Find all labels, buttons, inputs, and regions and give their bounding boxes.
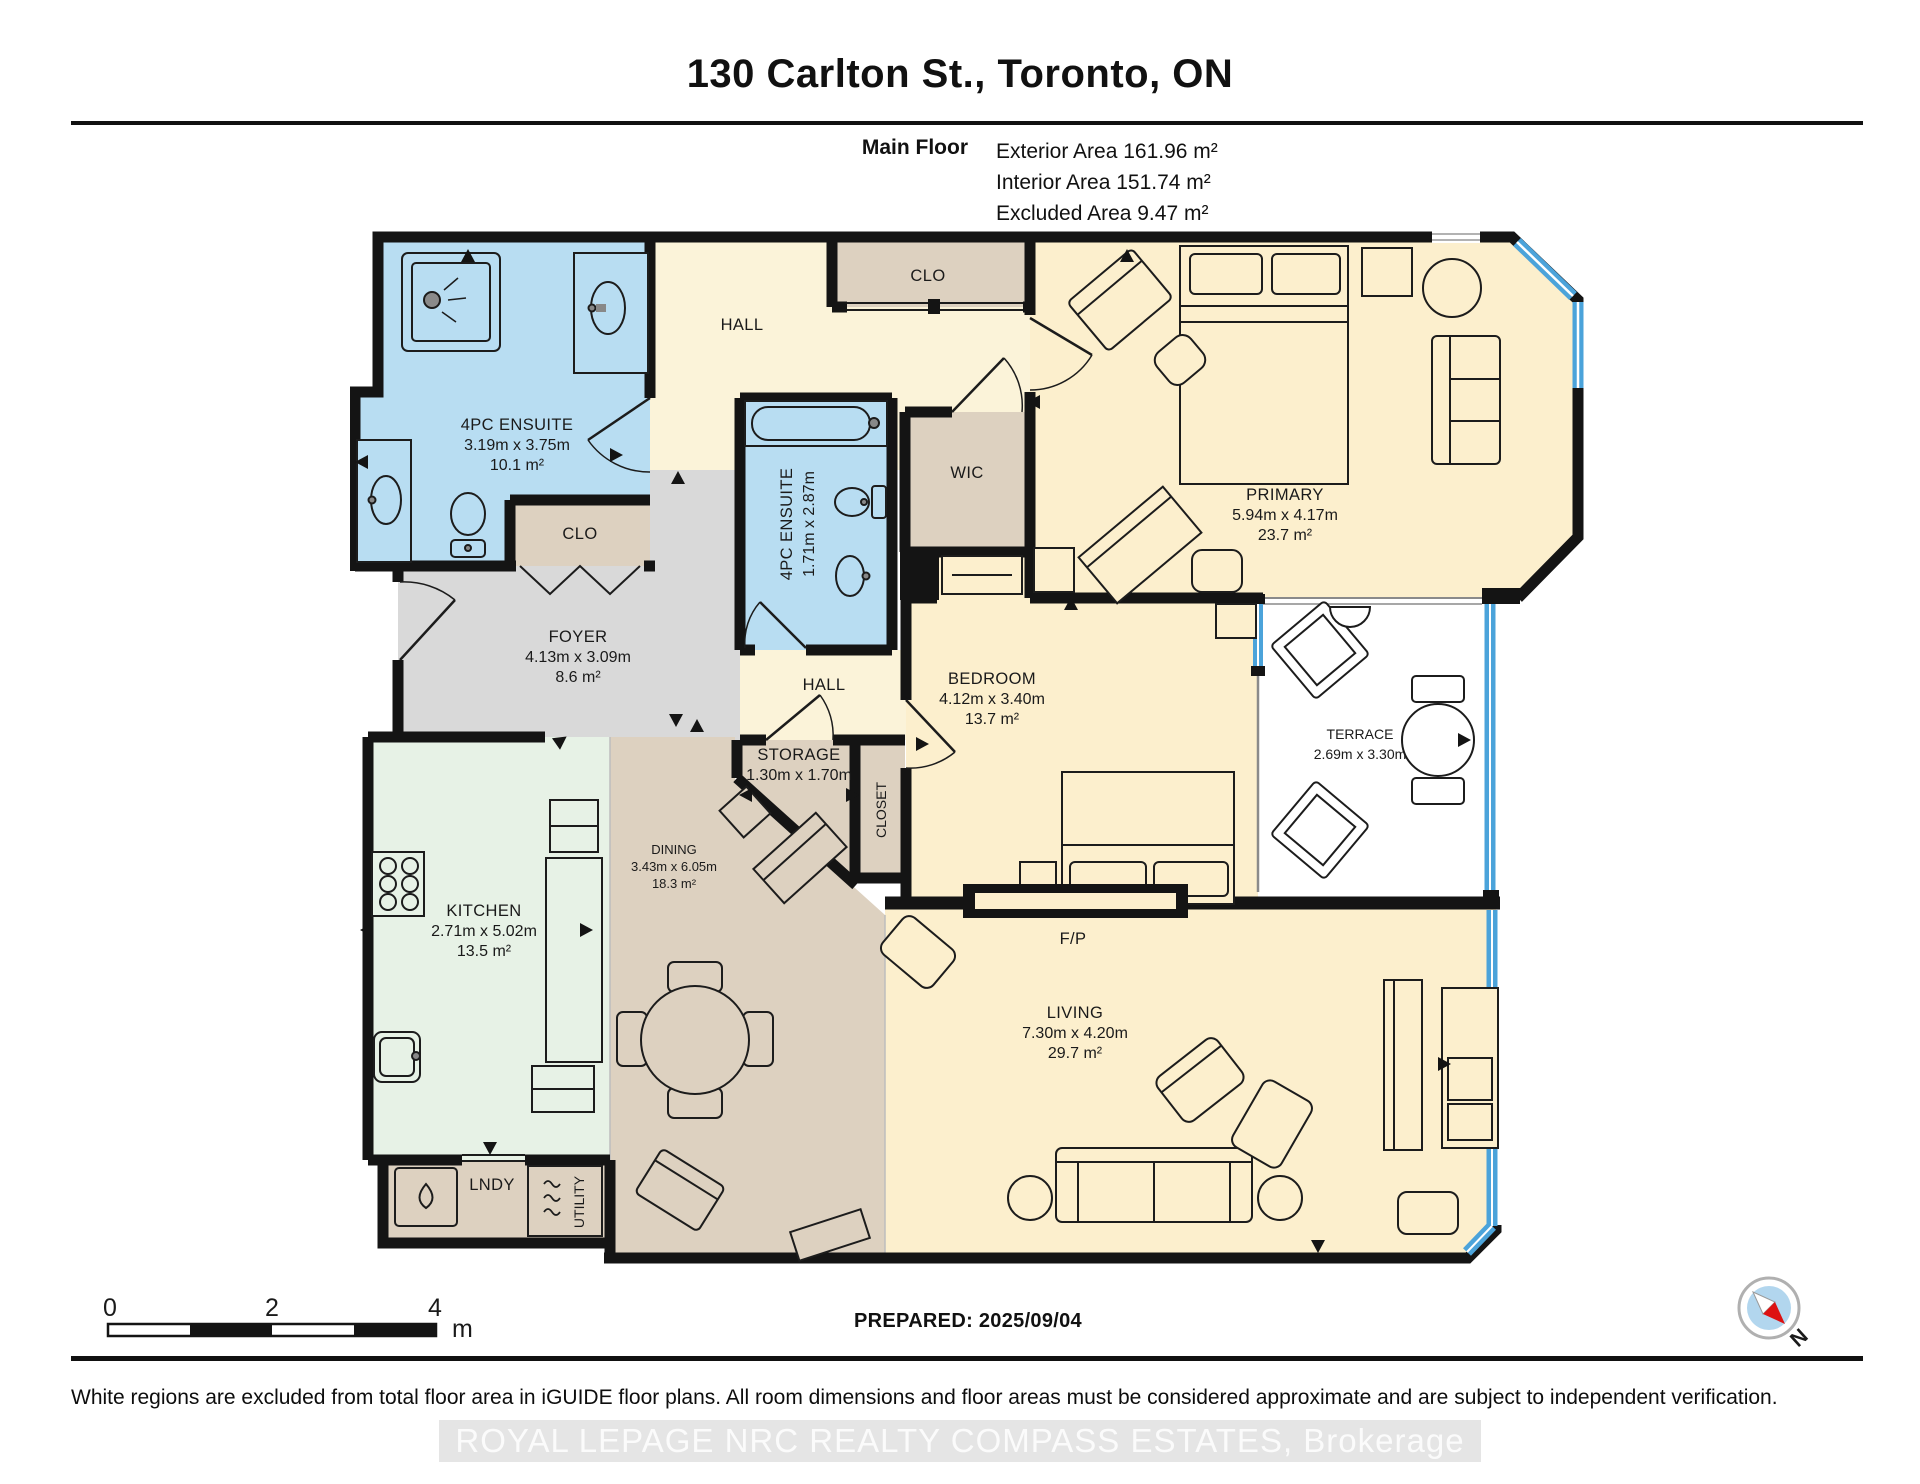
disclaimer: White regions are excluded from total fl… bbox=[71, 1386, 1871, 1410]
svg-text:23.7 m²: 23.7 m² bbox=[1258, 527, 1313, 544]
primary-bed bbox=[1180, 246, 1348, 484]
room-wic bbox=[905, 412, 1030, 552]
floor-plan-svg: 4PC ENSUITE 3.19m x 3.75m 10.1 m² HALL C… bbox=[350, 228, 1600, 1273]
vanity-sink-icon bbox=[574, 253, 648, 373]
header-divider bbox=[71, 121, 1863, 125]
label-foyer: FOYER bbox=[549, 628, 608, 646]
svg-text:8.6 m²: 8.6 m² bbox=[555, 669, 601, 686]
side-table2-icon bbox=[1216, 604, 1256, 638]
scale-tick-2: 2 bbox=[265, 1294, 279, 1322]
svg-text:2.71m x 5.02m: 2.71m x 5.02m bbox=[431, 923, 537, 940]
room-hall-lower bbox=[740, 650, 906, 740]
label-storage: STORAGE bbox=[757, 746, 840, 764]
label-ensuite1: 4PC ENSUITE bbox=[461, 416, 574, 434]
label-bedroom: BEDROOM bbox=[948, 670, 1036, 688]
media-cabinet-icon bbox=[1442, 988, 1498, 1148]
laundry-sink-icon bbox=[395, 1168, 457, 1226]
svg-text:10.1 m²: 10.1 m² bbox=[490, 457, 545, 474]
label-kitchen: KITCHEN bbox=[446, 902, 521, 920]
island-icon bbox=[546, 858, 602, 1062]
label-hall-lower: HALL bbox=[803, 676, 846, 694]
cabinet-icon bbox=[532, 1066, 594, 1112]
scale-bar: 0 2 4 m bbox=[90, 1288, 490, 1366]
scale-tick-0: 0 bbox=[103, 1294, 117, 1322]
label-wic: WIC bbox=[950, 464, 983, 482]
dresser-icon bbox=[942, 556, 1022, 594]
label-ensuite2: 4PC ENSUITE bbox=[778, 468, 796, 581]
kitchen-sink-icon bbox=[374, 1032, 420, 1082]
lounge-chair2-icon bbox=[1271, 781, 1370, 880]
label-hall-upper: HALL bbox=[721, 316, 764, 334]
svg-text:13.5 m²: 13.5 m² bbox=[457, 943, 512, 960]
svg-text:1.71m x 2.87m: 1.71m x 2.87m bbox=[801, 471, 818, 577]
fireplace-icon bbox=[963, 884, 1188, 918]
tv-unit-icon bbox=[1384, 980, 1422, 1150]
round-table-icon bbox=[1423, 259, 1481, 317]
brokerage-watermark: ROYAL LEPAGE NRC REALTY COMPASS ESTATES,… bbox=[439, 1420, 1480, 1462]
nightstand-icon bbox=[1362, 248, 1412, 296]
wall-filler bbox=[900, 550, 939, 600]
page-title: 130 Carlton St., Toronto, ON bbox=[0, 52, 1920, 97]
footer-divider bbox=[71, 1356, 1863, 1361]
svg-text:5.94m x 4.17m: 5.94m x 4.17m bbox=[1232, 507, 1338, 524]
svg-text:13.7 m²: 13.7 m² bbox=[965, 711, 1020, 728]
ottoman2-icon bbox=[1192, 550, 1242, 592]
svg-text:4.12m x 3.40m: 4.12m x 3.40m bbox=[939, 691, 1045, 708]
side-table3-icon bbox=[1398, 1192, 1458, 1234]
label-lndy: LNDY bbox=[469, 1176, 515, 1194]
side-table-icon bbox=[1034, 548, 1074, 592]
floor-plan-page: 130 Carlton St., Toronto, ON Main Floor … bbox=[0, 0, 1920, 1484]
label-clo-top: CLO bbox=[910, 267, 945, 285]
label-closet: CLOSET bbox=[873, 782, 889, 838]
label-primary: PRIMARY bbox=[1246, 486, 1324, 504]
living-sofa bbox=[1056, 1148, 1252, 1222]
svg-text:7.30m x 4.20m: 7.30m x 4.20m bbox=[1022, 1025, 1128, 1042]
svg-text:1.30m x 1.70m: 1.30m x 1.70m bbox=[746, 767, 852, 784]
svg-text:3.43m x 6.05m: 3.43m x 6.05m bbox=[631, 859, 717, 874]
label-utility: UTILITY bbox=[571, 1175, 587, 1228]
svg-text:18.3 m²: 18.3 m² bbox=[652, 876, 697, 891]
area-summary: Exterior Area 161.96 m² Interior Area 15… bbox=[996, 136, 1218, 229]
svg-text:4.13m x 3.09m: 4.13m x 3.09m bbox=[525, 649, 631, 666]
svg-text:3.19m x 3.75m: 3.19m x 3.75m bbox=[464, 437, 570, 454]
shower-icon bbox=[402, 253, 500, 351]
side-round-table-icon bbox=[1008, 1176, 1052, 1220]
fridge-icon bbox=[550, 800, 598, 852]
floor-label: Main Floor bbox=[768, 136, 968, 160]
scale-unit: m bbox=[452, 1315, 473, 1343]
toilet2-icon bbox=[835, 486, 886, 518]
bathtub-icon bbox=[745, 401, 887, 446]
toilet-icon bbox=[451, 493, 485, 557]
label-fireplace: F/P bbox=[1060, 930, 1087, 948]
terrace-corner-block bbox=[1482, 588, 1520, 604]
svg-text:29.7 m²: 29.7 m² bbox=[1048, 1045, 1103, 1062]
label-terrace: TERRACE bbox=[1327, 726, 1394, 742]
interior-area: Interior Area 151.74 m² bbox=[996, 167, 1218, 198]
scale-tick-4: 4 bbox=[428, 1294, 442, 1322]
side-round-table2-icon bbox=[1258, 1176, 1302, 1220]
cooktop-icon bbox=[372, 852, 424, 916]
water-heater-icon bbox=[528, 1166, 602, 1236]
label-dining: DINING bbox=[651, 842, 697, 857]
label-clo-foyer: CLO bbox=[562, 525, 597, 543]
prepared-date: PREPARED: 2025/09/04 bbox=[768, 1310, 1168, 1333]
primary-sofa bbox=[1432, 336, 1500, 464]
label-living: LIVING bbox=[1047, 1004, 1104, 1022]
exterior-area: Exterior Area 161.96 m² bbox=[996, 136, 1218, 167]
svg-text:2.69m x 3.30m: 2.69m x 3.30m bbox=[1314, 746, 1407, 762]
excluded-area: Excluded Area 9.47 m² bbox=[996, 198, 1218, 229]
